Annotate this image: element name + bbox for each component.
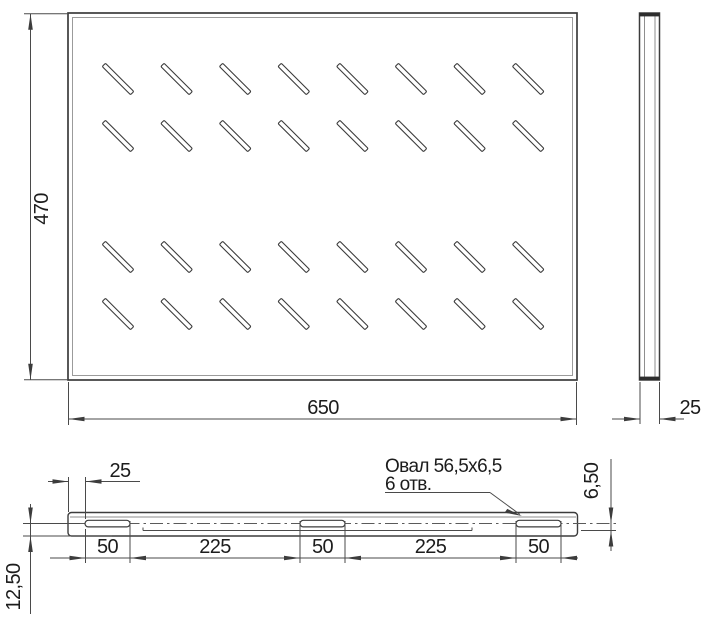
oval-slot — [516, 520, 561, 527]
slot-note: Овал 56,5x6,5 6 отв. — [385, 456, 522, 516]
arrowhead — [28, 508, 33, 524]
arrowhead — [284, 556, 300, 561]
dim-seg-label: 50 — [97, 536, 119, 558]
side-outline — [640, 13, 660, 380]
dim-seg-label: 50 — [312, 536, 334, 558]
arrowhead — [69, 417, 85, 422]
arrowhead — [609, 508, 614, 524]
plate-outline — [68, 13, 577, 380]
arrowhead — [500, 556, 516, 561]
technical-drawing-svg: 470 650 25 — [0, 0, 720, 628]
arrowhead — [609, 531, 614, 547]
arrowhead — [561, 556, 577, 561]
front-view — [56, 513, 616, 537]
arrowhead — [624, 417, 640, 422]
dim-slot-offset-label: 6,50 — [581, 462, 603, 499]
dim-edge-offset-label: 25 — [109, 460, 131, 482]
dim-depth-label: 25 — [679, 397, 701, 419]
arrowhead — [561, 417, 577, 422]
oval-slot — [85, 520, 130, 527]
drawing-canvas: 470 650 25 — [0, 0, 720, 628]
side-bottom-cap — [640, 377, 660, 380]
arrowhead — [28, 536, 33, 552]
dim-edge-offset-25: 25 — [48, 460, 140, 519]
arrowhead — [53, 479, 69, 484]
dim-seg-label: 225 — [415, 536, 447, 558]
side-top-cap — [640, 13, 660, 16]
arrowhead — [345, 556, 361, 561]
top-view — [68, 13, 577, 380]
side-view — [640, 13, 660, 380]
arrowhead — [660, 417, 676, 422]
dim-height-470: 470 — [24, 14, 68, 380]
arrowhead — [70, 556, 86, 561]
leader-line — [490, 493, 520, 515]
arrowhead — [130, 556, 146, 561]
dim-seg-label: 225 — [199, 536, 231, 558]
arrowhead — [86, 479, 102, 484]
oval-slot — [300, 520, 345, 527]
dim-width-650: 650 — [69, 382, 577, 425]
dim-depth-25: 25 — [612, 382, 701, 424]
slot-note-line2: 6 отв. — [385, 474, 431, 495]
dim-flange-height-label: 12,50 — [3, 563, 25, 611]
dim-slot-offset: 6,50 — [581, 459, 616, 551]
dim-seg-label: 50 — [528, 536, 550, 558]
arrowhead — [28, 14, 33, 30]
arrowhead — [28, 364, 33, 380]
dim-height-label: 470 — [31, 193, 53, 225]
dim-width-label: 650 — [307, 397, 339, 419]
